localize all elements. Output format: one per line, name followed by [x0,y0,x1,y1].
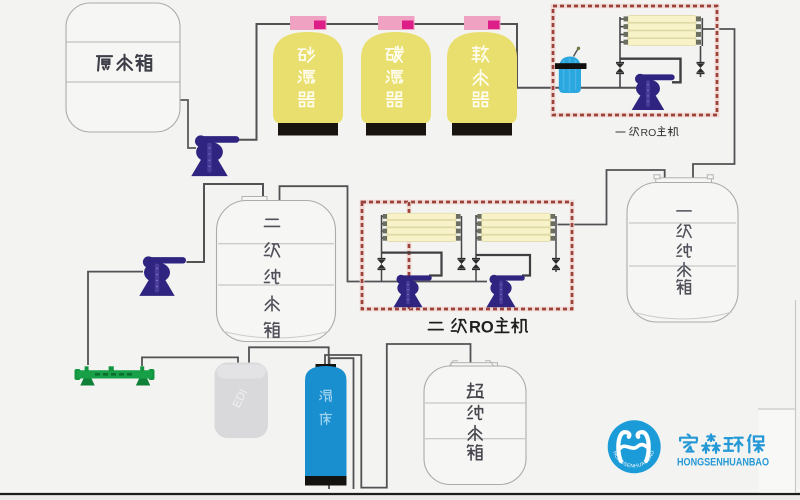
svg-text:HONGSENHUANBAO: HONGSENHUANBAO [677,457,769,469]
svg-text:RO: RO [641,127,657,139]
svg-text:RO: RO [469,319,494,337]
